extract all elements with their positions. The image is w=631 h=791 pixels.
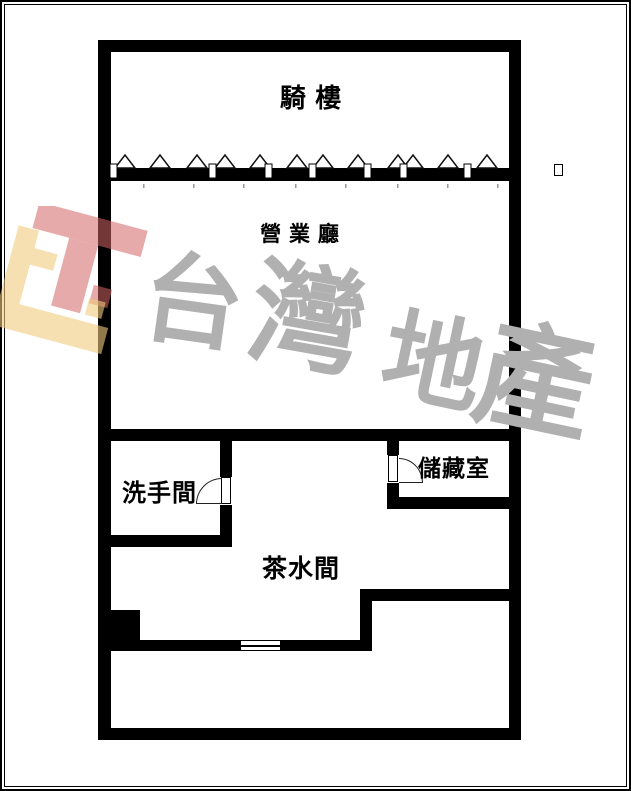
wall-bottom [98,728,521,740]
watermark-char-chan: 產 [465,311,605,451]
wall-top [98,40,521,52]
room-label-pantry: 茶水間 [262,557,340,582]
wall-storage-bottom [387,497,509,509]
window-pane-line [241,645,280,647]
arcade-fence-icon [110,153,509,188]
watermark-char-wan: 灣 [241,253,374,386]
wall-step-horizontal [360,589,509,601]
column-block [110,610,140,640]
room-label-washroom: 洗手間 [122,482,197,506]
unknown-glyph-box [554,164,563,176]
wall-washroom-bottom [110,535,232,547]
room-label-arcade: 騎 樓 [240,85,382,111]
wall-hall-divider [110,429,509,441]
floor-plan-image: 騎 樓 營 業 廳 洗手間 儲藏室 茶水間 台 灣 地 產 [0,0,631,791]
washroom-door-leaf [221,477,231,504]
watermark-char-tai: 台 [137,246,250,359]
pantry-window-icon [241,641,280,650]
storage-door-leaf [388,455,398,482]
room-label-hall: 營 業 廳 [230,224,370,245]
room-label-storage: 儲藏室 [418,457,490,480]
